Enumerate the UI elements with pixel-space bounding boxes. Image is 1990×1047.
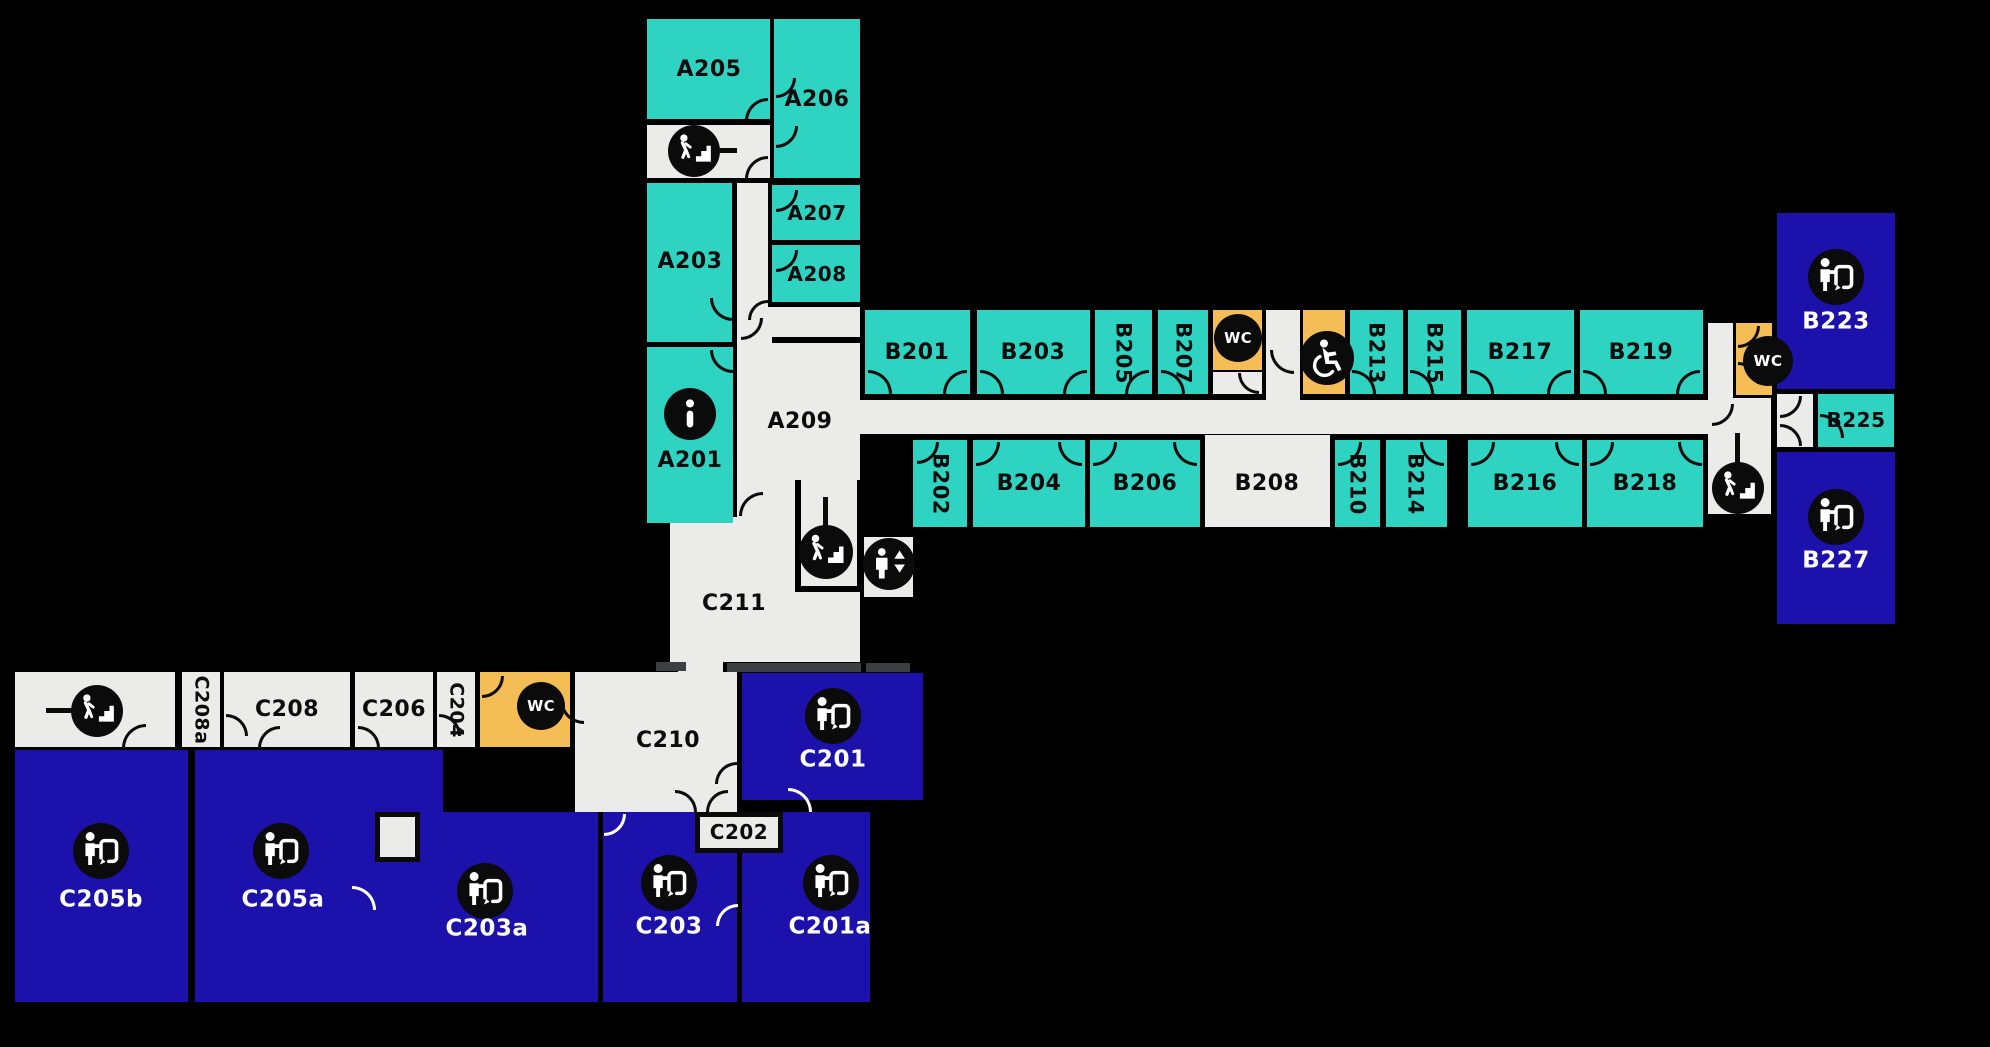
a-wing-corridor [737,183,768,313]
room-label-B207: B207 [1173,322,1194,384]
center-stairs-tick [823,497,828,526]
room-label-B218: B218 [1613,473,1678,495]
svg-text:WC: WC [1224,330,1252,347]
presenter-icon [805,688,861,744]
a209-wall [772,337,860,343]
presenter-icon [803,855,859,911]
stairs-icon [799,525,853,579]
room-label-C202: C202 [710,822,768,842]
room-label-B214: B214 [1405,453,1426,515]
room-label-C203a: C203a [446,918,529,941]
c-stairs-tick [46,708,72,713]
stairs-icon [71,685,123,737]
presenter-icon [1808,489,1864,545]
room-label-A206: A206 [785,89,850,111]
room-label-B208: B208 [1235,473,1300,495]
room-label-B213: B213 [1366,322,1387,384]
room-label-B203: B203 [1001,342,1066,364]
presenter-icon [253,823,309,879]
floor-plan: WCWCWCA205A206A203A207A208A201A209B201B2… [0,0,1990,1047]
threshold-1 [656,662,686,671]
wc-icon: WC [517,682,565,730]
presenter-icon [73,823,129,879]
elevator-icon [863,538,915,590]
room-label-C201a: C201a [789,916,872,939]
threshold-2 [727,663,861,672]
presenter-icon [457,863,513,919]
accessible-icon [1300,331,1354,385]
room-label-B201: B201 [885,342,950,364]
room-label-C208a: C208a [192,676,211,745]
stairwell-wall-bottom [795,586,863,592]
wc-icon: WC [1214,314,1262,362]
room-label-A205: A205 [677,59,742,81]
east-stairs-tick [1735,433,1740,463]
room-label-B202: B202 [930,453,951,515]
room-label-C205b: C205b [59,889,143,912]
b-east-corridor [1708,323,1733,402]
wc-icon: WC [1743,336,1793,386]
a-stairs-tick [720,148,737,153]
room-label-B206: B206 [1113,473,1178,495]
threshold-3 [866,663,910,672]
presenter-icon [641,855,697,911]
room-label-B215: B215 [1424,322,1445,384]
stairs-icon [668,125,720,177]
room-label-A203: A203 [658,251,723,273]
room-label-C204: C204 [447,682,466,738]
room-label-B216: B216 [1493,473,1558,495]
room-label-B219: B219 [1609,342,1674,364]
room-label-C203: C203 [636,916,703,939]
c203a-closet [375,812,420,862]
room-label-B204: B204 [997,473,1062,495]
stairs-icon [1712,462,1764,514]
room-label-A201: A201 [658,450,723,472]
b-wing-corridor [860,400,1733,434]
room-label-C206: C206 [362,699,426,721]
room-label-C201: C201 [800,749,867,772]
svg-text:WC: WC [527,698,555,715]
info-icon [664,388,716,440]
room-label-C211: C211 [702,593,766,615]
room-label-B227: B227 [1802,550,1870,573]
room-label-C205a: C205a [242,889,325,912]
room-label-B223: B223 [1802,311,1870,334]
room-label-A209: A209 [768,411,833,433]
room-label-B205: B205 [1113,322,1134,384]
room-label-B217: B217 [1488,342,1553,364]
room-label-C208: C208 [255,699,319,721]
room-label-A208: A208 [787,264,846,284]
presenter-icon [1808,249,1864,305]
room-label-A207: A207 [787,203,846,223]
room-label-C210: C210 [636,730,700,752]
svg-text:WC: WC [1754,352,1783,370]
room-label-B225: B225 [1827,410,1886,430]
room-label-B210: B210 [1347,453,1368,515]
